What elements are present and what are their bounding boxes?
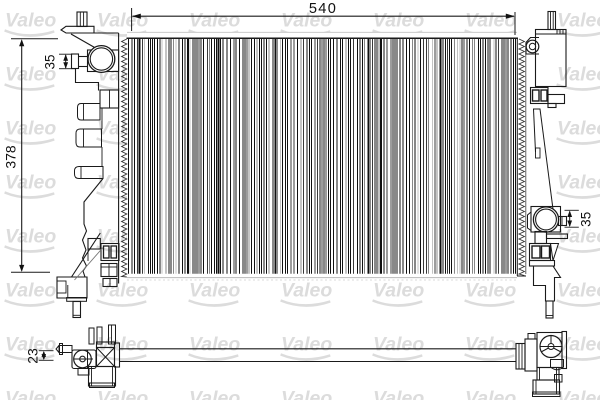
svg-text:540: 540 [309, 1, 337, 17]
svg-text:378: 378 [2, 145, 18, 169]
svg-text:35: 35 [579, 212, 594, 227]
svg-text:23: 23 [25, 348, 41, 364]
svg-text:35: 35 [42, 54, 57, 69]
